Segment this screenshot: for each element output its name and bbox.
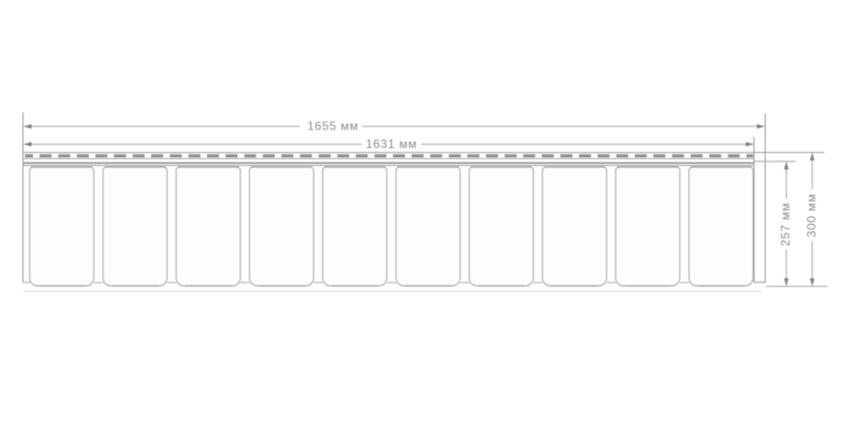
svg-text:257 мм: 257 мм xyxy=(779,202,793,246)
svg-text:1631 мм: 1631 мм xyxy=(366,137,417,151)
svg-text:1655 мм: 1655 мм xyxy=(307,119,358,133)
svg-text:300 мм: 300 мм xyxy=(804,193,818,237)
